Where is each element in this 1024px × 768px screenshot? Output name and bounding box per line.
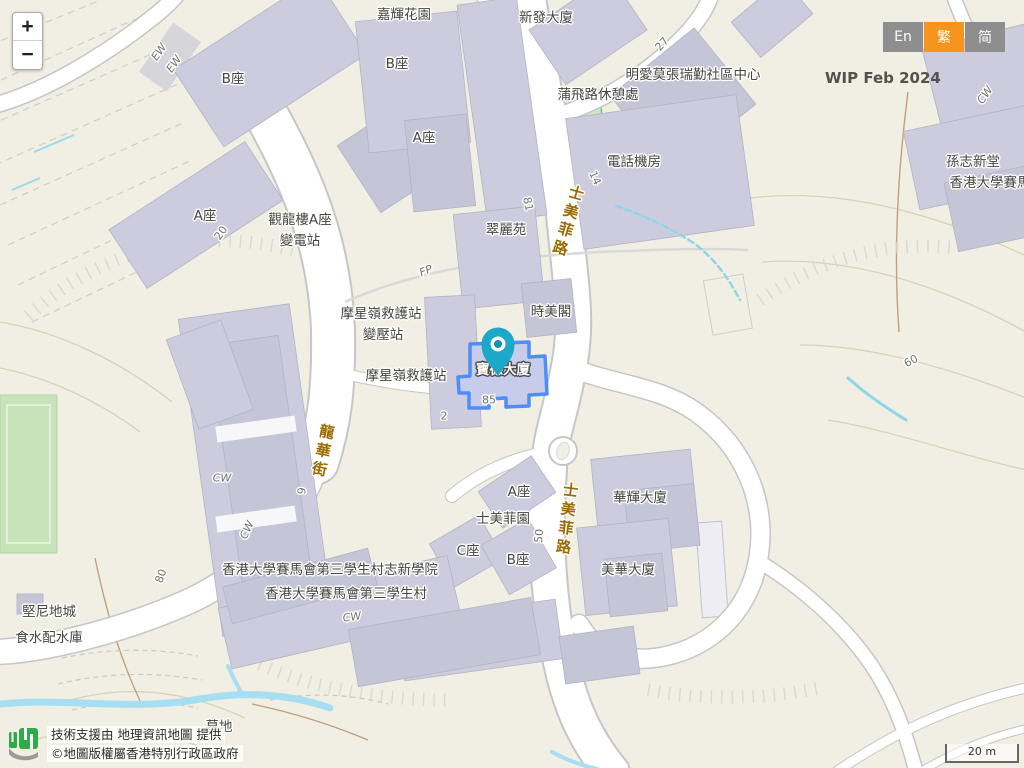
attribution-text: 技術支援由 地理資訊地圖 提供 ©地圖版權屬香港特別行政區政府 bbox=[47, 724, 243, 762]
location-pin-icon[interactable] bbox=[476, 323, 520, 378]
zoom-out-button[interactable]: − bbox=[13, 41, 42, 69]
map-canvas bbox=[0, 0, 1024, 768]
attribution-line2: ©地圖版權屬香港特別行政區政府 bbox=[47, 745, 243, 762]
zoom-control: + − bbox=[12, 12, 43, 70]
lang-simplified-button[interactable]: 简 bbox=[965, 22, 1005, 52]
map-viewport[interactable]: 嘉輝花園新發大廈B座B座A座明愛莫張瑞勤社區中心蒲飛路休憩處電話機房孫志新堂香港… bbox=[0, 0, 1024, 768]
roundabout bbox=[549, 437, 577, 465]
lang-traditional-button[interactable]: 繁 bbox=[924, 22, 964, 52]
attribution-line1: 技術支援由 地理資訊地圖 提供 bbox=[47, 726, 225, 743]
attribution: 技術支援由 地理資訊地圖 提供 ©地圖版權屬香港特別行政區政府 bbox=[7, 724, 243, 762]
zoom-in-button[interactable]: + bbox=[13, 13, 42, 41]
wip-watermark: WIP Feb 2024 bbox=[825, 69, 941, 87]
language-switcher: En 繁 简 bbox=[883, 22, 1005, 52]
lang-en-button[interactable]: En bbox=[883, 22, 923, 52]
scale-bar: 20 m bbox=[945, 744, 1019, 763]
geoinfo-map-logo-icon bbox=[7, 726, 41, 762]
